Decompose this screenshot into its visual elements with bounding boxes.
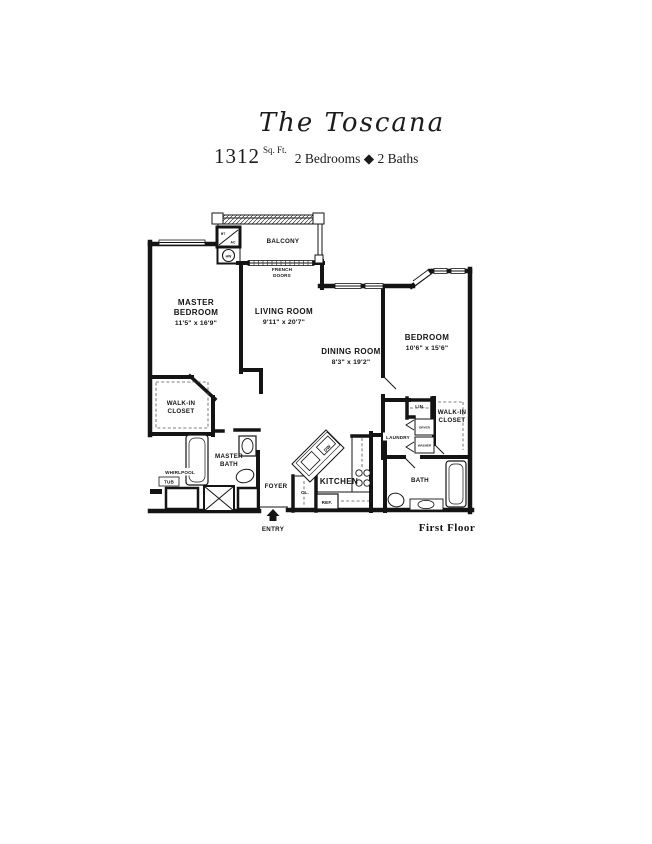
entry-label: ENTRY <box>262 526 285 533</box>
bedroom-dims: 10'6" x 15'6" <box>406 345 449 352</box>
bath2-vanity-sink <box>418 500 434 508</box>
bath2-vanity-sink <box>410 499 443 510</box>
bedroom-label: BEDROOM <box>405 333 450 342</box>
door-marks <box>383 376 396 389</box>
french-door-sill <box>248 261 314 266</box>
bath2-label: BATH <box>411 477 429 484</box>
walkin2-label-1: WALK-IN <box>438 409 467 416</box>
kitchen-island-counter <box>292 430 344 482</box>
bath2-toilet <box>387 491 406 508</box>
first-floor-label: First Floor <box>419 522 476 534</box>
master-bath-label-1: MASTER <box>215 453 243 460</box>
master-bedroom-label-2: BEDROOM <box>174 308 219 317</box>
living-room-dims: 9'11" x 20'7" <box>263 319 305 326</box>
master-bedroom-label-1: MASTER <box>178 298 214 307</box>
stove <box>364 480 370 486</box>
walkin2-label-2: CLOSET <box>439 417 466 424</box>
balcony-post-left <box>212 213 223 224</box>
door-marks <box>434 444 444 454</box>
dining-window-1 <box>335 284 361 289</box>
door-marks <box>404 457 415 468</box>
master-toilet <box>234 467 255 485</box>
lin-label: LIN. <box>415 404 424 409</box>
master-window <box>159 240 205 245</box>
whirlpool-label-1: WHIRLPOOL <box>165 470 195 475</box>
laundry-door-left <box>406 420 414 430</box>
floor-plan-svg: BALCONY FRENCH DOORS HT AC HW MASTER BED… <box>0 0 652 844</box>
french-doors-label-1: FRENCH <box>272 267 293 272</box>
balcony-railing <box>218 215 322 224</box>
master-vanity-sink <box>242 439 253 454</box>
kitchen-label: KITCHEN <box>320 477 358 486</box>
bath2-tub <box>449 464 463 504</box>
entry-arrow <box>267 509 280 521</box>
whirlpool-tub <box>186 435 208 485</box>
bedroom-window-1 <box>434 269 447 274</box>
shower <box>204 486 234 511</box>
bath2-fixtures <box>387 461 466 510</box>
balcony-post-right <box>313 213 324 224</box>
master-bath-label-2: BATH <box>220 461 238 468</box>
bay-window-diagonal <box>413 270 431 285</box>
bath-cabinet-left <box>166 488 198 509</box>
cl-label: CL. <box>301 490 309 495</box>
bath-cabinet-right <box>238 488 258 509</box>
kitchen-fixtures <box>292 430 371 509</box>
living-room-label: LIVING ROOM <box>255 307 313 316</box>
walkin-master-label-1: WALK-IN <box>167 400 196 407</box>
balcony-post-right-low <box>315 255 323 263</box>
ac-label: AC <box>231 241 236 245</box>
french-doors-label-2: DOORS <box>273 273 291 278</box>
master-bedroom-dims: 11'5" x 16'9" <box>175 320 217 327</box>
dryer-label: DRYER <box>419 426 430 430</box>
bedroom-window-2 <box>451 269 465 274</box>
wall-notch <box>150 489 162 494</box>
stove <box>356 470 362 476</box>
foyer-label: FOYER <box>265 483 288 490</box>
floorplan-page: The Toscana 1312Sq. Ft.2 Bedrooms ◆ 2 Ba… <box>0 0 652 844</box>
laundry-door-right <box>406 442 414 452</box>
washer-label: WASHER <box>418 444 432 448</box>
dining-room-dims: 8'3" x 19'2" <box>332 359 371 366</box>
balcony-label: BALCONY <box>267 238 300 245</box>
walkin-master-label-2: CLOSET <box>168 408 195 415</box>
bath2-toilet <box>387 491 406 508</box>
hw-label: HW <box>226 255 232 259</box>
stove <box>364 470 370 476</box>
master-toilet <box>234 467 255 485</box>
ref-label: REF. <box>322 500 333 505</box>
whirlpool-label-2: TUB <box>164 480 175 485</box>
dining-window-2 <box>365 284 383 289</box>
laundry-label: LAUNDRY <box>386 435 410 440</box>
bath2-tub <box>446 461 466 507</box>
dining-room-label: DINING ROOM <box>321 347 381 356</box>
